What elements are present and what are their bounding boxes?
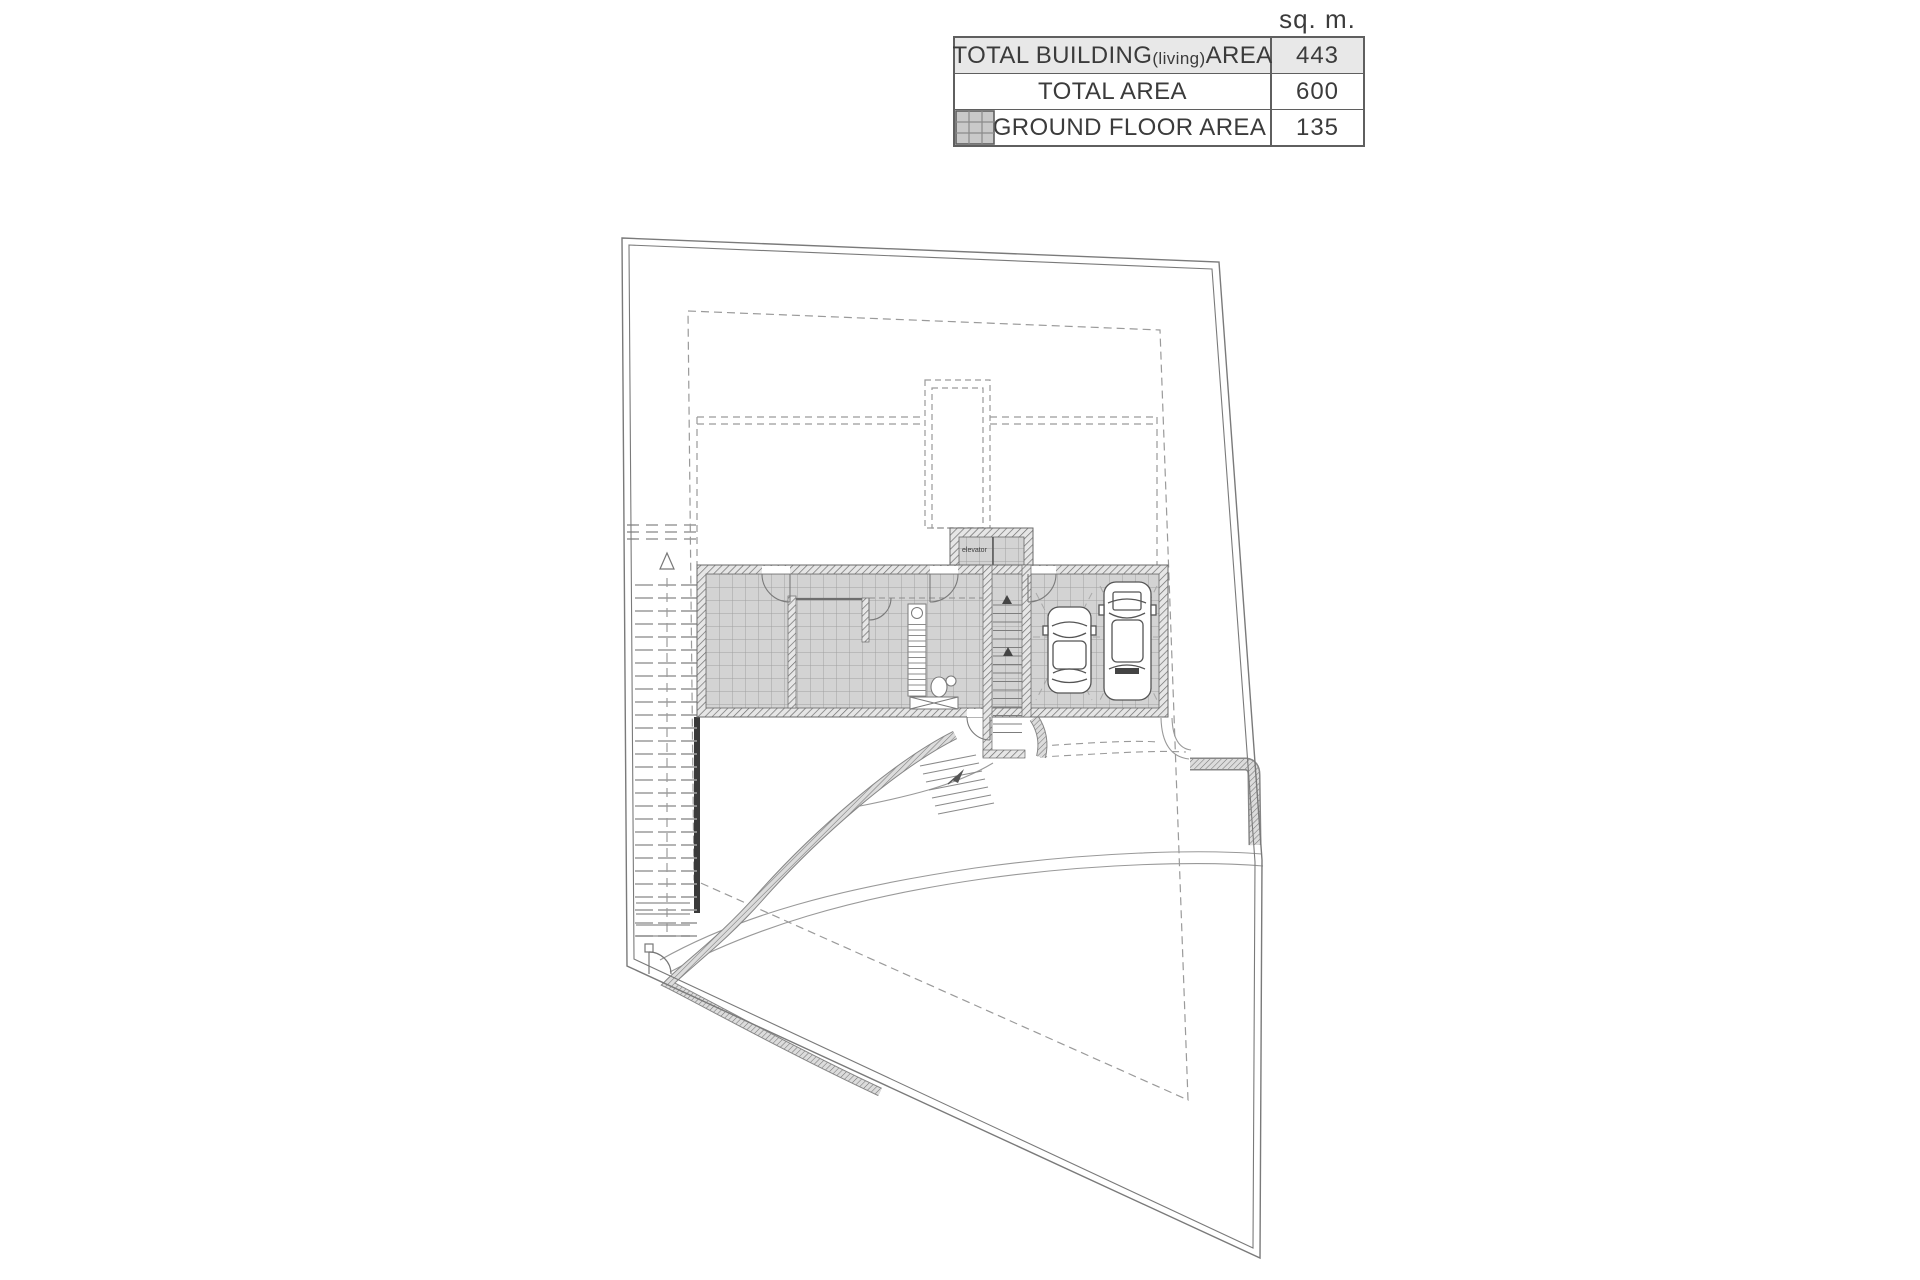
table-row-total-area: TOTAL AREA 600 xyxy=(955,73,1363,109)
table-row-ground-floor: GROUND FLOOR AREA 135 xyxy=(955,109,1363,145)
plot-boundary xyxy=(622,238,1262,1258)
internal-stairs xyxy=(993,598,1022,734)
table-row-total-building: TOTAL BUILDING(living) AREA 443 xyxy=(955,38,1363,73)
elevator-label: elevator xyxy=(962,547,988,554)
stairs-up-arrow xyxy=(660,553,674,569)
shaft-right-wall xyxy=(1022,565,1031,717)
ground-floor-hatch-swatch-icon xyxy=(955,110,995,145)
row-label: GROUND FLOOR AREA xyxy=(959,114,1267,142)
steps-direction-arrow xyxy=(948,769,964,784)
exterior-steps xyxy=(920,755,994,814)
left-exterior-stairs xyxy=(627,525,699,974)
shaft-bottom-wall xyxy=(983,750,1025,758)
interior-wall xyxy=(862,598,869,642)
area-legend: sq. m. TOTAL BUILDING(living) AREA 443 T… xyxy=(953,4,1365,147)
row-label-tail: AREA xyxy=(1206,42,1273,70)
row-value: 135 xyxy=(1272,110,1363,145)
floor-hatch-icon xyxy=(910,697,958,709)
main-building: elevator xyxy=(697,528,1168,758)
car-small-icon xyxy=(1043,607,1096,693)
interior-wall xyxy=(788,596,796,708)
area-table: TOTAL BUILDING(living) AREA 443 TOTAL AR… xyxy=(953,36,1365,147)
entry-walkway xyxy=(1034,718,1255,845)
unit-header: sq. m. xyxy=(1270,4,1365,36)
gate-door-arc xyxy=(645,944,671,974)
retaining-wall xyxy=(668,735,955,1092)
car-large-icon xyxy=(1099,582,1156,700)
tower-dashed-outline xyxy=(925,380,990,528)
upper-floor-dashed-outline xyxy=(697,417,1157,565)
row-value: 443 xyxy=(1272,38,1363,73)
row-label: TOTAL AREA xyxy=(1038,78,1187,106)
shaft-left-wall xyxy=(983,565,992,757)
site-plan-drawing: elevator xyxy=(0,0,1920,1280)
row-label: TOTAL BUILDING xyxy=(952,42,1152,70)
driveway-path xyxy=(660,718,1263,972)
hidden-driveway-dashed xyxy=(1040,741,1186,757)
site-plan-sheet: elevator xyxy=(0,0,1920,1280)
closet-icon xyxy=(908,604,926,696)
row-label-sub: (living) xyxy=(1152,49,1205,73)
row-value: 600 xyxy=(1272,74,1363,109)
